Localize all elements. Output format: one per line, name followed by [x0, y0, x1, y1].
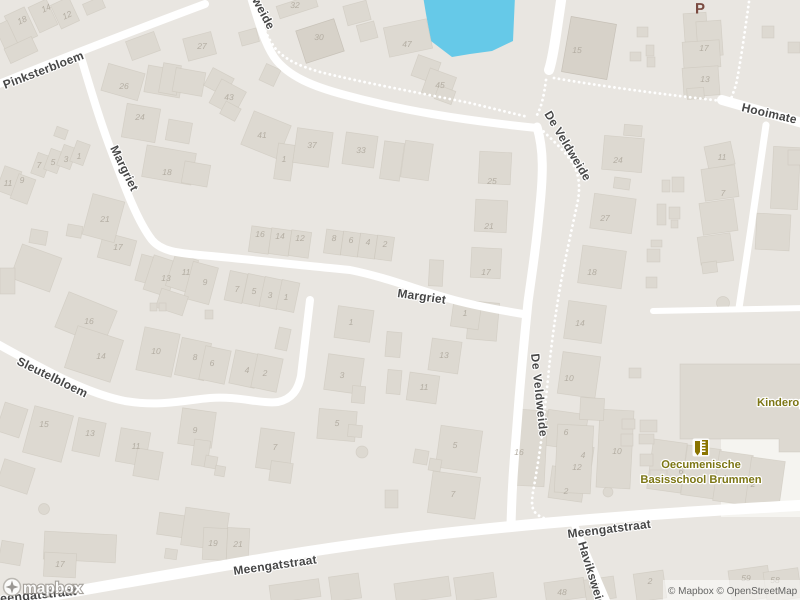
- svg-text:37: 37: [307, 140, 317, 150]
- svg-text:21: 21: [232, 539, 243, 549]
- svg-text:5: 5: [335, 418, 340, 428]
- svg-text:7: 7: [235, 284, 240, 294]
- svg-text:48: 48: [557, 587, 567, 597]
- svg-text:17: 17: [481, 267, 491, 277]
- svg-text:18: 18: [162, 167, 172, 177]
- svg-text:47: 47: [402, 39, 412, 49]
- svg-text:21: 21: [99, 214, 110, 224]
- svg-text:15: 15: [572, 45, 582, 55]
- svg-text:2: 2: [262, 368, 268, 378]
- svg-text:2: 2: [382, 239, 388, 249]
- svg-text:17: 17: [55, 559, 65, 569]
- svg-text:4: 4: [366, 237, 371, 247]
- svg-text:Kinderopvang: Kinderopvang: [757, 397, 800, 409]
- svg-text:8: 8: [332, 233, 337, 243]
- svg-text:32: 32: [290, 0, 300, 10]
- svg-text:4: 4: [245, 365, 250, 375]
- svg-text:3: 3: [64, 154, 69, 164]
- svg-text:Oecumenische: Oecumenische: [661, 459, 741, 471]
- svg-text:11: 11: [420, 382, 429, 392]
- svg-text:30: 30: [314, 32, 324, 42]
- svg-text:33: 33: [356, 145, 366, 155]
- svg-text:1: 1: [463, 308, 468, 318]
- svg-text:1: 1: [282, 154, 287, 164]
- svg-text:mapbox: mapbox: [23, 580, 83, 597]
- svg-text:6: 6: [564, 427, 569, 437]
- svg-text:5: 5: [453, 440, 458, 450]
- svg-text:6: 6: [349, 235, 354, 245]
- svg-text:27: 27: [196, 41, 207, 51]
- svg-text:3: 3: [268, 290, 273, 300]
- svg-text:41: 41: [257, 130, 267, 140]
- svg-text:26: 26: [118, 81, 129, 91]
- svg-text:13: 13: [85, 428, 95, 438]
- svg-text:10: 10: [612, 446, 622, 456]
- svg-text:11: 11: [182, 267, 191, 277]
- svg-text:7: 7: [37, 160, 42, 170]
- svg-text:12: 12: [295, 233, 305, 243]
- svg-text:13: 13: [439, 350, 449, 360]
- svg-text:6: 6: [210, 358, 215, 368]
- svg-text:8: 8: [193, 352, 198, 362]
- svg-text:4: 4: [581, 450, 586, 460]
- svg-text:1: 1: [77, 151, 82, 161]
- svg-text:27: 27: [599, 213, 610, 223]
- svg-text:2: 2: [647, 576, 653, 586]
- svg-text:10: 10: [151, 346, 161, 356]
- svg-text:25: 25: [486, 176, 497, 186]
- svg-text:9: 9: [20, 175, 25, 185]
- svg-text:3: 3: [340, 370, 345, 380]
- svg-text:Basisschool Brummen: Basisschool Brummen: [640, 474, 761, 486]
- svg-text:45: 45: [435, 80, 445, 90]
- svg-text:24: 24: [134, 112, 145, 122]
- svg-text:11: 11: [4, 178, 13, 188]
- svg-text:13: 13: [161, 273, 171, 283]
- svg-text:16: 16: [84, 316, 94, 326]
- svg-text:12: 12: [572, 462, 582, 472]
- svg-text:24: 24: [612, 155, 623, 165]
- svg-text:17: 17: [699, 43, 709, 53]
- svg-text:© Mapbox © OpenStreetMap: © Mapbox © OpenStreetMap: [668, 586, 798, 597]
- svg-text:43: 43: [224, 92, 234, 102]
- svg-text:16: 16: [514, 447, 524, 457]
- svg-text:21: 21: [483, 221, 494, 231]
- svg-text:7: 7: [721, 188, 726, 198]
- svg-text:1: 1: [349, 317, 354, 327]
- svg-text:11: 11: [132, 441, 141, 451]
- svg-text:7: 7: [273, 442, 278, 452]
- svg-text:1: 1: [284, 292, 289, 302]
- svg-text:17: 17: [113, 242, 123, 252]
- svg-text:7: 7: [451, 489, 456, 499]
- svg-text:14: 14: [96, 351, 106, 361]
- svg-text:18: 18: [587, 267, 597, 277]
- svg-text:15: 15: [39, 419, 49, 429]
- svg-text:14: 14: [275, 231, 285, 241]
- svg-text:11: 11: [718, 152, 727, 162]
- svg-text:9: 9: [203, 277, 208, 287]
- svg-text:5: 5: [252, 286, 257, 296]
- svg-text:14: 14: [575, 318, 585, 328]
- svg-text:10: 10: [564, 373, 574, 383]
- svg-text:16: 16: [255, 229, 265, 239]
- svg-text:P: P: [695, 1, 705, 18]
- svg-text:9: 9: [193, 425, 198, 435]
- svg-text:5: 5: [51, 157, 56, 167]
- svg-text:19: 19: [208, 538, 218, 548]
- svg-text:2: 2: [563, 486, 569, 496]
- svg-text:13: 13: [700, 74, 710, 84]
